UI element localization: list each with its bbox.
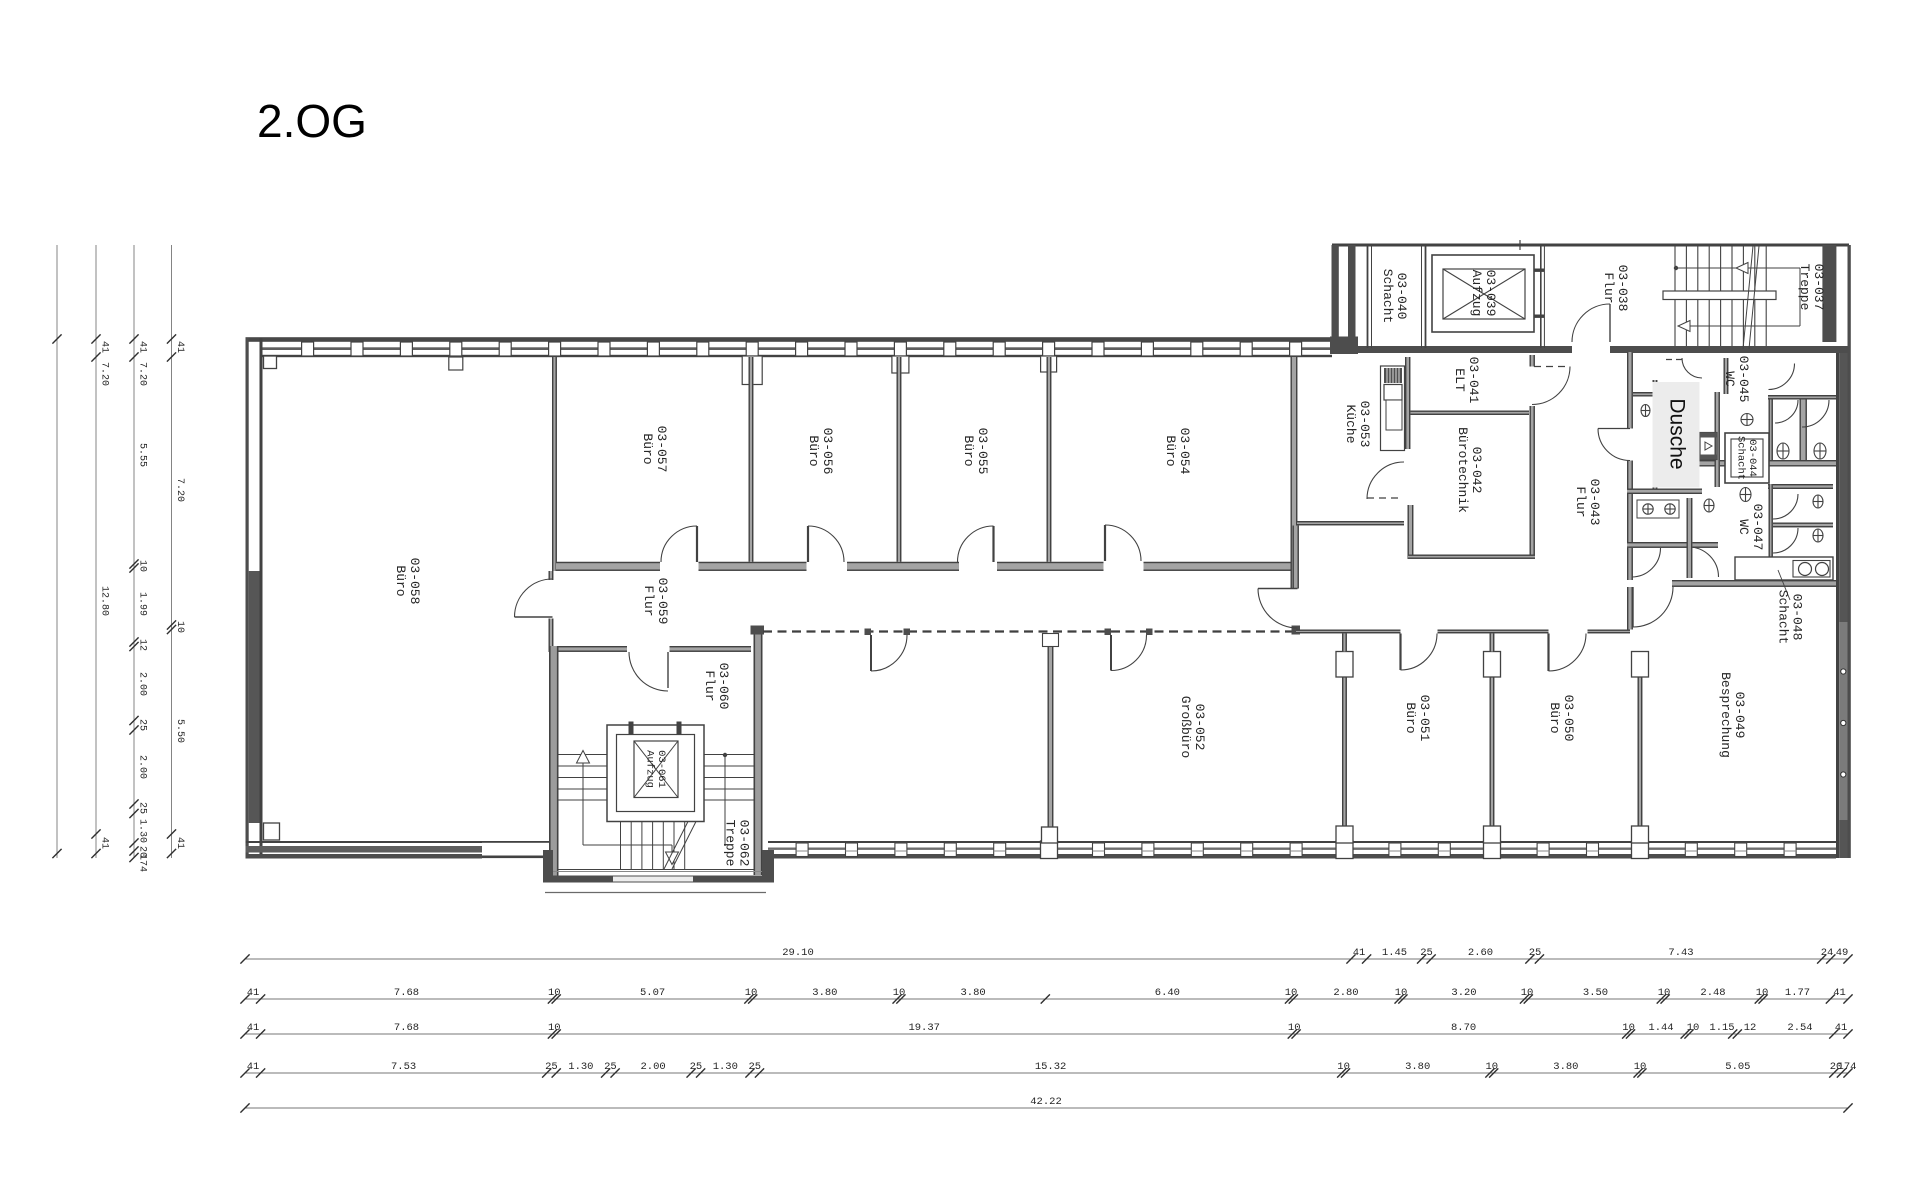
svg-text:49: 49 xyxy=(1836,947,1849,959)
svg-text:7.20: 7.20 xyxy=(99,362,110,386)
svg-text:2.OG: 2.OG xyxy=(257,95,367,147)
svg-text:10: 10 xyxy=(1687,1022,1700,1034)
svg-text:41: 41 xyxy=(99,341,110,353)
svg-text:WC: WC xyxy=(1722,371,1737,387)
svg-text:7.68: 7.68 xyxy=(394,987,419,999)
svg-text:Büro: Büro xyxy=(806,435,821,466)
svg-text:Dusche: Dusche xyxy=(1665,398,1688,469)
svg-text:Besprechung: Besprechung xyxy=(1718,672,1733,758)
svg-text:15.32: 15.32 xyxy=(1035,1061,1067,1073)
svg-text:5.55: 5.55 xyxy=(137,443,148,467)
svg-text:03-043: 03-043 xyxy=(1587,479,1602,526)
svg-text:03-041: 03-041 xyxy=(1466,357,1481,404)
svg-text:3.80: 3.80 xyxy=(812,987,837,999)
svg-text:12.80: 12.80 xyxy=(99,586,110,616)
svg-text:1.45: 1.45 xyxy=(1382,947,1407,959)
svg-text:1.30: 1.30 xyxy=(137,819,148,843)
svg-text:3.80: 3.80 xyxy=(1405,1061,1430,1073)
svg-text:Büro: Büro xyxy=(1163,435,1178,466)
svg-text:03-058: 03-058 xyxy=(407,558,422,605)
svg-text:Flur: Flur xyxy=(1601,272,1616,303)
svg-text:10: 10 xyxy=(1521,987,1534,999)
svg-text:03-055: 03-055 xyxy=(975,428,990,475)
svg-text:Schacht: Schacht xyxy=(1776,590,1791,645)
svg-text:1.30: 1.30 xyxy=(713,1061,738,1073)
svg-text:03-062: 03-062 xyxy=(737,820,752,867)
svg-text:10: 10 xyxy=(548,1022,561,1034)
svg-text:41: 41 xyxy=(247,987,260,999)
svg-text:25: 25 xyxy=(1420,947,1433,959)
svg-text:25: 25 xyxy=(690,1061,703,1073)
svg-text:Büro: Büro xyxy=(1547,702,1562,733)
svg-text:41: 41 xyxy=(137,341,148,353)
svg-text:10: 10 xyxy=(174,621,185,633)
svg-text:03-056: 03-056 xyxy=(820,428,835,475)
svg-text:Büro: Büro xyxy=(1403,702,1418,733)
svg-text:41: 41 xyxy=(247,1022,260,1034)
svg-text:10: 10 xyxy=(1622,1022,1635,1034)
svg-text:WC: WC xyxy=(1736,519,1751,535)
svg-text:03-059: 03-059 xyxy=(655,578,670,625)
svg-text:03-048: 03-048 xyxy=(1790,594,1805,641)
svg-text:19.37: 19.37 xyxy=(908,1022,940,1034)
svg-text:41: 41 xyxy=(1835,1022,1848,1034)
svg-text:2.00: 2.00 xyxy=(137,672,148,696)
svg-text:03-039: 03-039 xyxy=(1483,270,1498,317)
svg-text:03-049: 03-049 xyxy=(1732,692,1747,739)
svg-text:1.44: 1.44 xyxy=(1648,1022,1673,1034)
svg-text:29.10: 29.10 xyxy=(782,947,814,959)
svg-text:7.20: 7.20 xyxy=(137,362,148,386)
svg-text:Büro: Büro xyxy=(961,435,976,466)
svg-text:10: 10 xyxy=(1395,987,1408,999)
svg-text:5.07: 5.07 xyxy=(640,987,665,999)
svg-text:Küche: Küche xyxy=(1343,404,1358,443)
svg-text:7.20: 7.20 xyxy=(174,478,185,502)
svg-text:10: 10 xyxy=(137,560,148,572)
svg-text:2.00: 2.00 xyxy=(137,755,148,779)
svg-text:Flur: Flur xyxy=(641,585,656,616)
svg-text:10: 10 xyxy=(745,987,758,999)
svg-text:10: 10 xyxy=(1658,987,1671,999)
svg-text:41: 41 xyxy=(174,837,185,849)
svg-text:3.80: 3.80 xyxy=(1553,1061,1578,1073)
svg-text:7.43: 7.43 xyxy=(1668,947,1693,959)
svg-text:3.80: 3.80 xyxy=(960,987,985,999)
svg-text:1.99: 1.99 xyxy=(137,592,148,616)
svg-text:25: 25 xyxy=(1529,947,1542,959)
svg-text:41: 41 xyxy=(1353,947,1366,959)
svg-text:5.05: 5.05 xyxy=(1725,1061,1750,1073)
svg-text:2.80: 2.80 xyxy=(1333,987,1358,999)
svg-text:10: 10 xyxy=(1288,1022,1301,1034)
svg-text:8.70: 8.70 xyxy=(1451,1022,1476,1034)
svg-text:Treppe: Treppe xyxy=(1797,264,1812,311)
svg-text:41: 41 xyxy=(174,341,185,353)
svg-text:10: 10 xyxy=(548,987,561,999)
svg-text:Großbüro: Großbüro xyxy=(1178,696,1193,758)
svg-text:Flur: Flur xyxy=(1573,486,1588,517)
svg-text:6.40: 6.40 xyxy=(1155,987,1180,999)
svg-text:03-060: 03-060 xyxy=(716,663,731,710)
svg-text:2.48: 2.48 xyxy=(1700,987,1725,999)
svg-text:03-038: 03-038 xyxy=(1615,265,1630,312)
svg-text:10: 10 xyxy=(1485,1061,1498,1073)
svg-text:1.30: 1.30 xyxy=(568,1061,593,1073)
svg-text:7.53: 7.53 xyxy=(391,1061,416,1073)
svg-text:Aufzug: Aufzug xyxy=(644,750,656,788)
svg-text:25: 25 xyxy=(137,802,148,814)
svg-text:03-045: 03-045 xyxy=(1736,356,1751,403)
svg-text:5.50: 5.50 xyxy=(174,719,185,743)
svg-text:7.68: 7.68 xyxy=(394,1022,419,1034)
svg-text:03-050: 03-050 xyxy=(1561,695,1576,742)
svg-text:03-057: 03-057 xyxy=(654,426,669,473)
svg-text:12: 12 xyxy=(1744,1022,1757,1034)
svg-text:Büro: Büro xyxy=(640,433,655,464)
svg-text:Aufzug: Aufzug xyxy=(1469,270,1484,317)
svg-text:3.20: 3.20 xyxy=(1451,987,1476,999)
svg-text:ELT: ELT xyxy=(1452,368,1467,392)
svg-text:24: 24 xyxy=(1821,947,1834,959)
svg-text:03-061: 03-061 xyxy=(655,750,667,788)
svg-text:10: 10 xyxy=(1285,987,1298,999)
svg-text:3.50: 3.50 xyxy=(1583,987,1608,999)
svg-text:Schacht: Schacht xyxy=(1735,436,1747,480)
svg-text:41: 41 xyxy=(247,1061,260,1073)
svg-text:10: 10 xyxy=(1337,1061,1350,1073)
svg-text:10: 10 xyxy=(1756,987,1769,999)
svg-text:Bürotechnik: Bürotechnik xyxy=(1455,427,1470,513)
svg-text:25: 25 xyxy=(545,1061,558,1073)
svg-text:Treppe: Treppe xyxy=(723,820,738,867)
svg-text:Flur: Flur xyxy=(702,670,717,701)
svg-text:10: 10 xyxy=(893,987,906,999)
svg-text:25: 25 xyxy=(604,1061,617,1073)
svg-text:03-051: 03-051 xyxy=(1417,695,1432,742)
svg-text:2.54: 2.54 xyxy=(1787,1022,1812,1034)
svg-text:03-047: 03-047 xyxy=(1750,504,1765,551)
svg-text:10: 10 xyxy=(1634,1061,1647,1073)
svg-text:12: 12 xyxy=(137,639,148,651)
svg-text:42.22: 42.22 xyxy=(1030,1096,1062,1108)
svg-text:41: 41 xyxy=(1833,987,1846,999)
svg-text:03-040: 03-040 xyxy=(1394,273,1409,320)
svg-text:Schacht: Schacht xyxy=(1380,269,1395,324)
svg-text:03-054: 03-054 xyxy=(1177,428,1192,475)
svg-text:Büro: Büro xyxy=(393,565,408,596)
svg-text:174: 174 xyxy=(1838,1061,1857,1073)
svg-text:2.00: 2.00 xyxy=(640,1061,665,1073)
svg-text:2.60: 2.60 xyxy=(1468,947,1493,959)
svg-text:174: 174 xyxy=(137,854,148,872)
svg-text:25: 25 xyxy=(748,1061,761,1073)
svg-text:03-052: 03-052 xyxy=(1192,704,1207,751)
svg-text:25: 25 xyxy=(137,719,148,731)
svg-text:1.77: 1.77 xyxy=(1785,987,1810,999)
svg-text:03-053: 03-053 xyxy=(1357,401,1372,448)
svg-text:03-044: 03-044 xyxy=(1746,439,1758,477)
svg-text:03-037: 03-037 xyxy=(1811,264,1826,311)
svg-text:41: 41 xyxy=(99,837,110,849)
svg-text:03-042: 03-042 xyxy=(1469,447,1484,494)
svg-text:1.15: 1.15 xyxy=(1709,1022,1734,1034)
